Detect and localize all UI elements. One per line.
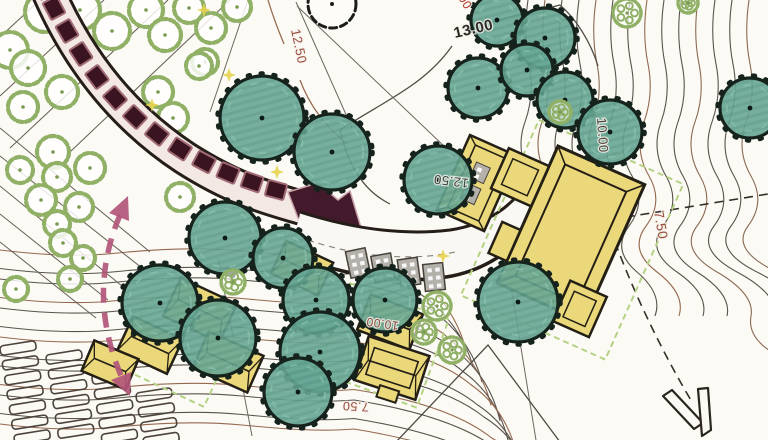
road-paver (265, 180, 287, 200)
deciduous-tree (223, 0, 251, 21)
deciduous-tree (11, 51, 45, 85)
site-plan-sheet: 12.50 13.00 00 10.00 7.50 12.50 10.00 7.… (0, 0, 768, 440)
deciduous-tree (4, 277, 28, 301)
flower-shrub (439, 337, 465, 363)
deciduous-tree (186, 53, 212, 79)
deciduous-tree (75, 153, 105, 183)
flower-shrub (423, 292, 451, 320)
deciduous-tree (7, 157, 33, 183)
panel-unit (423, 263, 446, 292)
elevation-label: 10.00 (594, 117, 611, 153)
deciduous-tree (8, 92, 38, 122)
site-plan-drawing: 12.50 13.00 00 10.00 7.50 12.50 10.00 7.… (0, 0, 768, 440)
deciduous-tree (149, 19, 181, 51)
deciduous-tree (94, 13, 130, 49)
elevation-label: 7.50 (342, 399, 369, 414)
deciduous-tree (46, 76, 78, 108)
flower-shrub (678, 0, 698, 13)
deciduous-tree (166, 183, 194, 211)
deciduous-tree (58, 267, 82, 291)
flower-shrub (412, 320, 436, 344)
flower-shrub (221, 270, 245, 294)
flower-shrub (613, 0, 641, 27)
flower-shrub (549, 101, 571, 123)
deciduous-tree (196, 13, 226, 43)
